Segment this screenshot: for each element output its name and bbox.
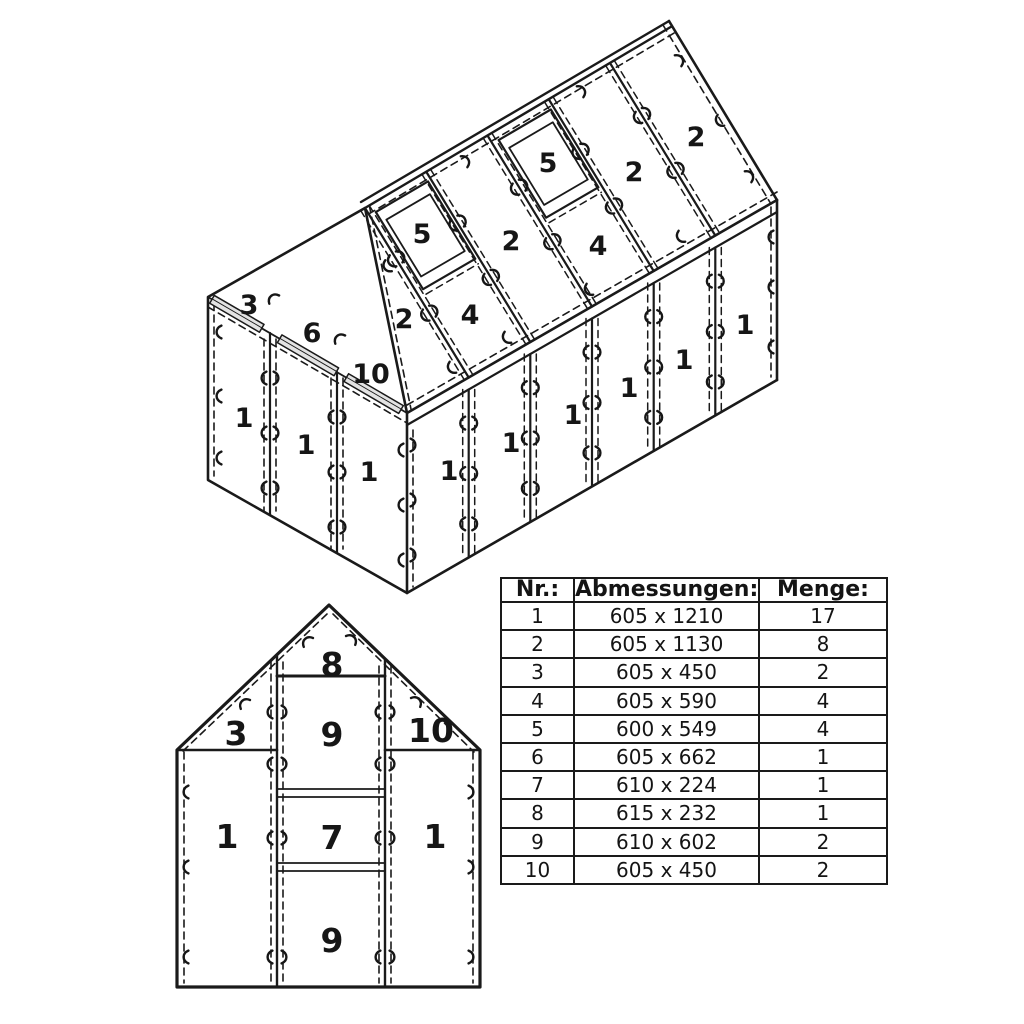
parts-table-cell: 2 [759,856,887,884]
parts-table-cell: 2 [501,630,574,658]
front-elevation-panel-label-1: 1 [216,817,239,856]
parts-table-row-8: 8615 x 2321 [501,799,887,827]
parts-table-cell: 1 [759,771,887,799]
clip-icon [461,154,472,167]
iso-gable-panel-label-1: 1 [360,457,379,488]
parts-table-cell: 605 x 662 [574,743,759,771]
parts-table-row-10: 10605 x 4502 [501,856,887,884]
parts-table-cell: 2 [759,828,887,856]
parts-table-cell: 7 [501,771,574,799]
iso-roof-panel-label-5: 5 [413,219,432,250]
clip-icon [501,332,512,345]
iso-roof-panel-label-2: 2 [502,226,521,257]
parts-table-cell: 610 x 602 [574,828,759,856]
panel-edge-line [669,21,777,200]
iso-wall-panel-label-1: 1 [675,345,694,376]
clip-icon [411,494,416,507]
parts-table-row-5: 5600 x 5494 [501,715,887,743]
dashed-guide-line [484,139,588,310]
parts-table-header-row: Nr.: Abmessungen: Menge: [501,578,887,602]
iso-gable-panel-label-3: 3 [240,290,259,321]
diagram-page: 254254223610111111111893101719 Nr.: Abme… [0,0,1024,1024]
parts-table-cell: 3 [501,658,574,686]
clip-icon [769,341,774,354]
parts-table-cell: 17 [759,602,887,630]
clip-icon [184,786,189,799]
parts-table-cell: 2 [759,658,887,686]
clip-icon [657,310,662,323]
clip-icon [745,169,756,182]
parts-table-row-4: 4605 x 5904 [501,687,887,715]
front-elevation-panel-label-10: 10 [408,711,454,750]
iso-wall-panel-label-1: 1 [564,400,583,431]
clip-icon [184,951,189,964]
parts-table-cell: 605 x 450 [574,658,759,686]
front-elevation-panel-label-9: 9 [321,921,344,960]
parts-table-row-3: 3605 x 4502 [501,658,887,686]
parts-table-cell: 1 [501,602,574,630]
clip-icon [584,346,589,359]
iso-roof-panel-label-2: 2 [395,304,414,335]
dashed-guide-line [183,614,327,751]
iso-roof-panel-label-2: 2 [625,157,644,188]
parts-table-cell: 605 x 590 [574,687,759,715]
parts-table-cell: 610 x 224 [574,771,759,799]
clip-icon [472,417,477,430]
iso-gable-panel-label-1: 1 [297,430,316,461]
parts-table-cell: 9 [501,828,574,856]
iso-gable-panel-label-10: 10 [352,359,390,390]
clip-icon [184,861,189,874]
parts-table-row-6: 6605 x 6621 [501,743,887,771]
clip-icon [769,281,774,294]
parts-table-cell: 600 x 549 [574,715,759,743]
parts-table-row-7: 7610 x 2241 [501,771,887,799]
panel-edge-line [361,21,669,202]
iso-gable-panel-label-6: 6 [303,318,322,349]
parts-table: Nr.: Abmessungen: Menge: 1605 x 12101726… [500,577,888,885]
front-elevation-panel-label-1: 1 [424,817,447,856]
parts-table-row-2: 2605 x 11308 [501,630,887,658]
parts-table-cell: 5 [501,715,574,743]
iso-roof-panel-label-4: 4 [589,231,608,262]
front-elevation-panel-label-9: 9 [321,715,344,754]
parts-table-cell: 4 [501,687,574,715]
parts-table-cell: 1 [759,743,887,771]
parts-table-cell: 8 [759,630,887,658]
parts-table-cell: 8 [501,799,574,827]
clip-icon [346,633,359,645]
clip-icon [675,53,686,66]
parts-table-row-1: 1605 x 121017 [501,602,887,630]
clip-icon [675,231,686,244]
front-elevation-panel-label-8: 8 [321,645,344,684]
parts-table-cell: 1 [759,799,887,827]
front-elevation-panel-label-3: 3 [225,714,248,753]
front-elevation-panel-label-7: 7 [321,818,344,857]
col-header-abmessungen: Abmessungen: [574,578,759,602]
parts-table-cell: 605 x 1130 [574,630,759,658]
parts-table-cell: 615 x 232 [574,799,759,827]
clip-icon [300,635,313,647]
iso-roof-panel-label-2: 2 [687,122,706,153]
parts-table-cell: 4 [759,687,887,715]
clip-icon [469,786,474,799]
parts-table-row-9: 9610 x 6022 [501,828,887,856]
parts-table-cell: 6 [501,743,574,771]
iso-roof-panel-label-4: 4 [461,300,480,331]
clip-icon [596,346,601,359]
clip-icon [719,275,724,288]
iso-wall-panel-label-1: 1 [440,456,459,487]
clip-icon [707,275,712,288]
parts-table-cell: 605 x 450 [574,856,759,884]
iso-roof-panel-label-5: 5 [539,148,558,179]
col-header-nr: Nr.: [501,578,574,602]
isometric-view-drawing [208,21,777,593]
clip-icon [645,310,650,323]
parts-table-cell: 605 x 1210 [574,602,759,630]
clip-icon [469,861,474,874]
iso-gable-panel-label-1: 1 [235,403,254,434]
clip-icon [534,381,539,394]
col-header-menge: Menge: [759,578,887,602]
clip-icon [522,381,527,394]
iso-wall-panel-label-1: 1 [620,373,639,404]
clip-icon [460,417,465,430]
parts-table-cell: 4 [759,715,887,743]
iso-wall-panel-label-1: 1 [502,428,521,459]
parts-table-container: Nr.: Abmessungen: Menge: 1605 x 12101726… [500,577,886,885]
iso-wall-panel-label-1: 1 [736,310,755,341]
clip-icon [469,951,474,964]
parts-table-cell: 10 [501,856,574,884]
